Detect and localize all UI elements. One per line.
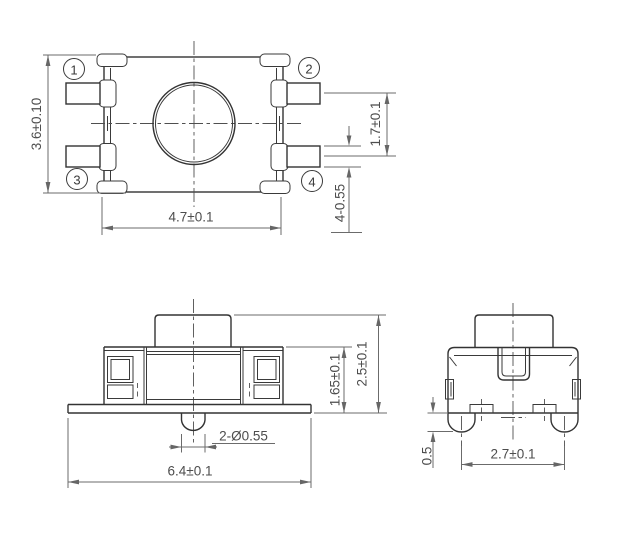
- switch-body-outline: [104, 57, 283, 192]
- dimension-peg-diameter: 2-Ø0.55: [169, 429, 275, 453]
- corner-tab: [260, 181, 290, 194]
- dimension-pin-spacing: 1.7±0.1: [324, 93, 396, 156]
- dim-text-body-width: 4.7±0.1: [169, 210, 214, 225]
- dim-text-peg-diameter: 2-Ø0.55: [219, 429, 268, 444]
- pin-label-2: 2: [305, 62, 312, 77]
- dimension-pin-width: 4-0.55: [324, 126, 362, 233]
- button-outline: [155, 315, 231, 347]
- dim-text-pin-spacing: 1.7±0.1: [368, 102, 383, 147]
- terminal-4: [287, 146, 320, 167]
- top-view: 1 2 3 4 3.6±0.10 4: [29, 41, 396, 235]
- pin-label-1: 1: [70, 63, 77, 78]
- pin-balloon-3: 3: [67, 169, 88, 190]
- dim-text-pin-width: 4-0.55: [333, 184, 348, 222]
- dimension-body-width: 4.7±0.1: [102, 197, 281, 235]
- technical-drawing: 1 2 3 4 3.6±0.10 4: [0, 0, 621, 551]
- corner-tab: [97, 181, 127, 194]
- side-tab: [573, 380, 581, 400]
- corner-tab: [97, 54, 127, 67]
- pin-balloon-2: 2: [299, 58, 320, 79]
- drawing-sheet: 1 2 3 4 3.6±0.10 4: [0, 0, 621, 551]
- dim-text-body-height: 3.6±0.10: [29, 98, 44, 150]
- dimension-total-width: 6.4±0.1: [68, 418, 311, 488]
- terminal-3: [66, 146, 100, 167]
- corner-tab: [260, 54, 290, 67]
- dimension-body-height-front: 1.65±0.1: [286, 347, 387, 413]
- lead-bump: [99, 80, 116, 107]
- dim-text-leg-spacing: 2.7±0.1: [491, 447, 536, 462]
- pin-balloon-1: 1: [64, 59, 85, 80]
- terminal-1: [66, 83, 100, 104]
- terminal-2: [287, 83, 320, 104]
- dim-text-body-height-front: 1.65±0.1: [328, 354, 343, 406]
- pin-label-3: 3: [73, 173, 80, 188]
- front-view: 2-Ø0.55 6.4±0.1 1.65±0.1 2.5±0.1: [68, 299, 387, 488]
- side-tab: [446, 380, 454, 400]
- pin-balloon-4: 4: [302, 171, 323, 192]
- dim-text-leg-protrusion: 0.5: [420, 447, 435, 466]
- dim-text-total-height: 2.5±0.1: [355, 342, 370, 387]
- lead-bump: [271, 80, 288, 107]
- side-view: 2.7±0.1 0.5: [420, 303, 581, 470]
- lead-bump: [271, 144, 288, 171]
- lead-bump: [99, 144, 116, 171]
- pin-label-4: 4: [308, 175, 315, 190]
- button-outline: [475, 315, 553, 347]
- dimension-leg-spacing: 2.7±0.1: [462, 446, 565, 470]
- dim-text-total-width: 6.4±0.1: [168, 464, 213, 479]
